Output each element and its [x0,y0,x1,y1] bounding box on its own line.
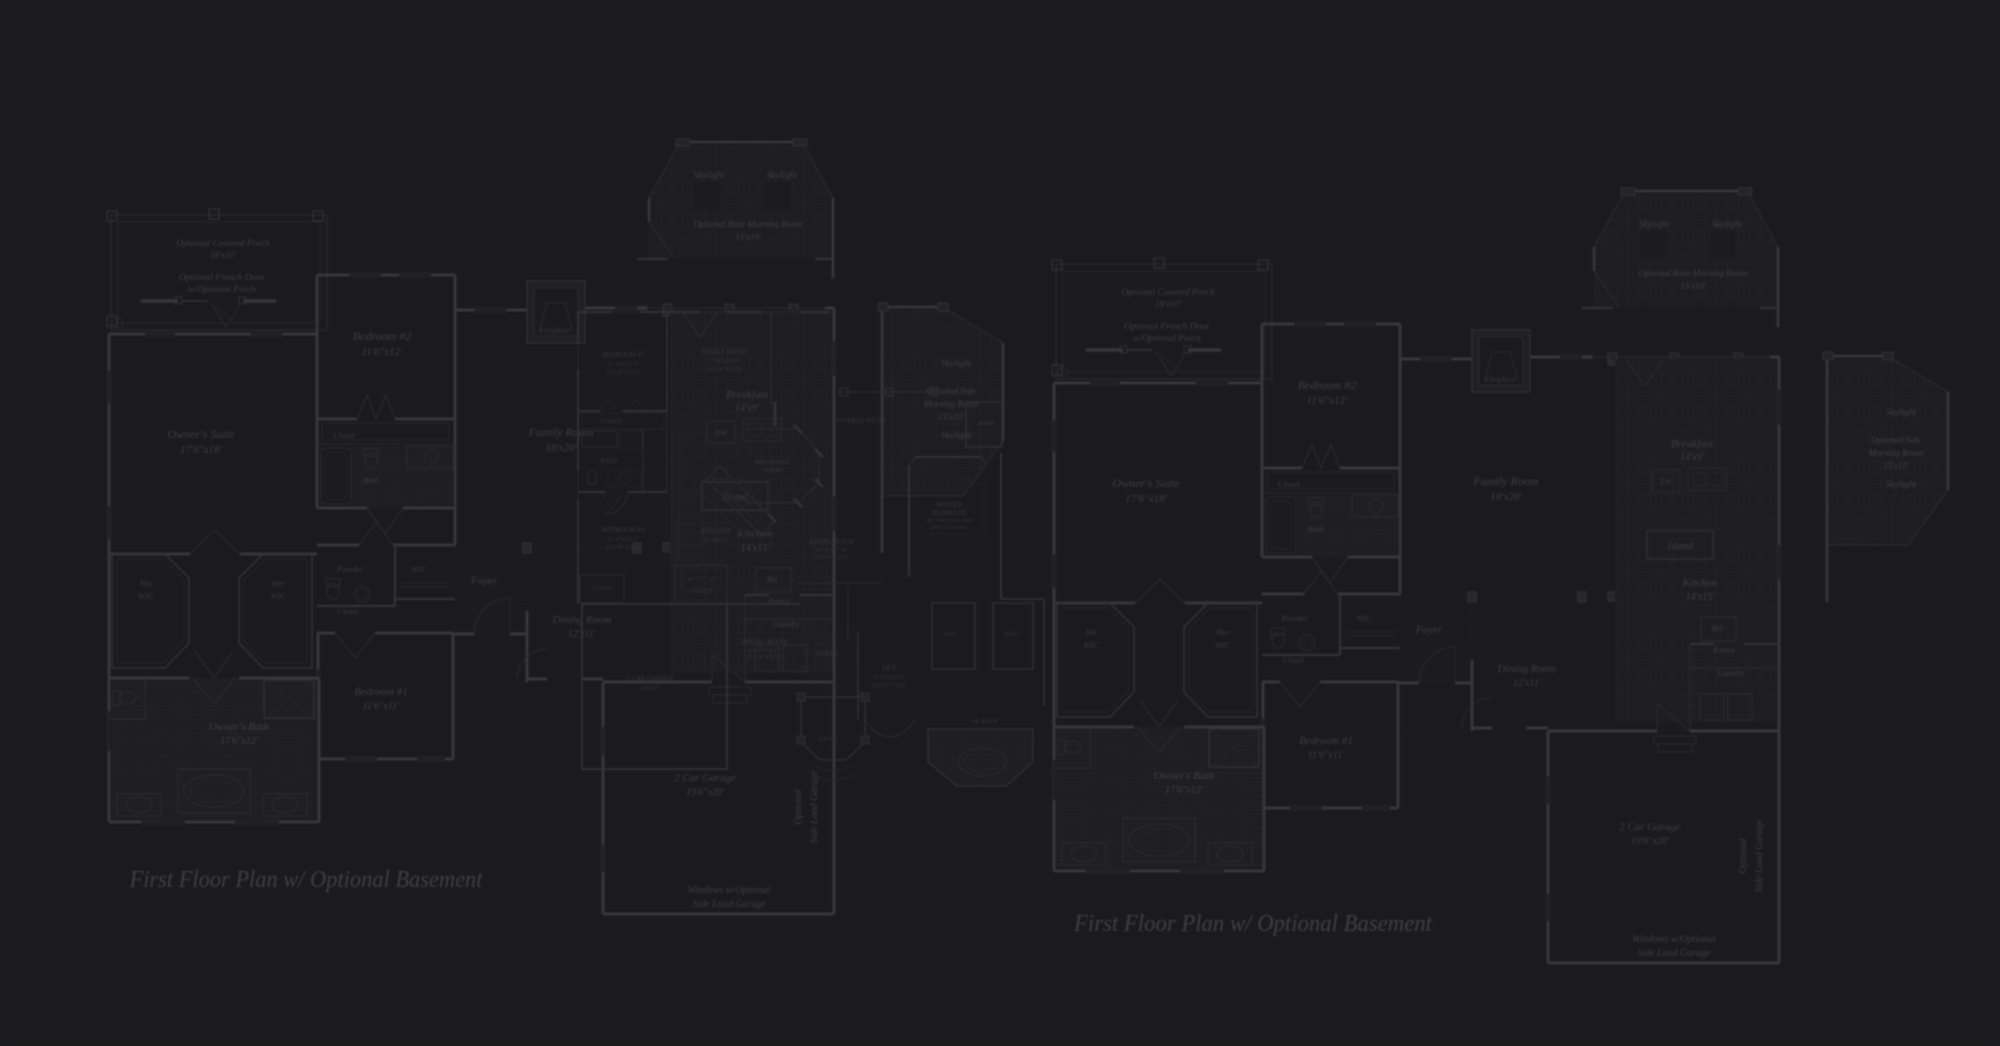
svg-text:10'-8″x13': 10'-8″x13' [703,537,729,544]
svg-text:(12'-0″ CLG): (12'-0″ CLG) [748,654,781,661]
svg-text:W.I.C.: W.I.C. [943,631,958,638]
svg-text:(12'-9″ CLG): (12'-9″ CLG) [607,369,640,376]
svg-text:(12'-0″ CLG): (12'-0″ CLG) [816,554,849,561]
svg-text:DINING ROOM: DINING ROOM [740,638,788,646]
svg-text:17'-8″x19'-0″: 17'-8″x19'-0″ [707,358,741,365]
svg-text:First Floor Plan w/ Optional: First Floor Plan w/ Optional Basement [129,867,484,893]
svg-text:KITCHEN: KITCHEN [700,527,731,535]
svg-text:BREAKFAST: BREAKFAST [755,459,791,466]
svg-text:(12'-0″ CLG): (12'-0″ CLG) [873,682,906,689]
svg-text:20'x20': 20'x20' [641,685,659,692]
svg-text:OPT. CLG FAN): OPT. CLG FAN) [931,524,968,531]
svg-text:11'-0″x14'-0″: 11'-0″x14'-0″ [748,647,781,654]
svg-text:13'-0″x17'-8″: 13'-0″x17'-8″ [815,547,849,554]
svg-text:DEN: DEN [881,664,896,672]
svg-text:2 CAR GARAGE: 2 CAR GARAGE [626,675,674,683]
svg-text:BATH: BATH [978,420,994,427]
svg-text:FAMILY ROOM: FAMILY ROOM [700,348,748,356]
svg-text:11'-0″x12'-0″: 11'-0″x12'-0″ [873,674,906,681]
svg-text:BEDROOM: BEDROOM [932,509,967,517]
svg-text:W.I.C.: W.I.C. [1004,631,1019,638]
svg-text:ENTRY: ENTRY [818,736,838,743]
svg-text:LIVING ROOM: LIVING ROOM [809,538,856,546]
svg-text:(12'-9″ CLG): (12'-9″ CLG) [708,366,741,373]
svg-text:CLOSET: CLOSET [600,418,623,425]
svg-text:BATH: BATH [600,457,618,465]
svg-text:BEDROOM #3: BEDROOM #3 [602,351,645,359]
svg-text:COVERED PATIO: COVERED PATIO [833,417,885,425]
svg-text:BEDROOM #4: BEDROOM #4 [602,526,645,534]
svg-text:MASTER: MASTER [935,501,963,509]
svg-text:11'-4″x11'-0″: 11'-4″x11'-0″ [607,361,640,368]
svg-text:NOOK: NOOK [762,467,782,474]
svg-text:FOYER: FOYER [815,650,839,658]
svg-text:D: D [709,577,714,583]
svg-text:(12'-9″ CLG): (12'-9″ CLG) [607,544,640,551]
svg-text:First Floor Plan w/ Optional: First Floor Plan w/ Optional Basement [1073,911,1433,937]
svg-text:CLOSET: CLOSET [592,586,614,592]
svg-text:M. BATH: M. BATH [971,718,998,725]
svg-text:W: W [688,577,693,583]
svg-text:(W/ TRAY CLG AND: (W/ TRAY CLG AND [926,517,973,524]
svg-text:11'-4″x11'-2″: 11'-4″x11'-2″ [607,536,640,543]
